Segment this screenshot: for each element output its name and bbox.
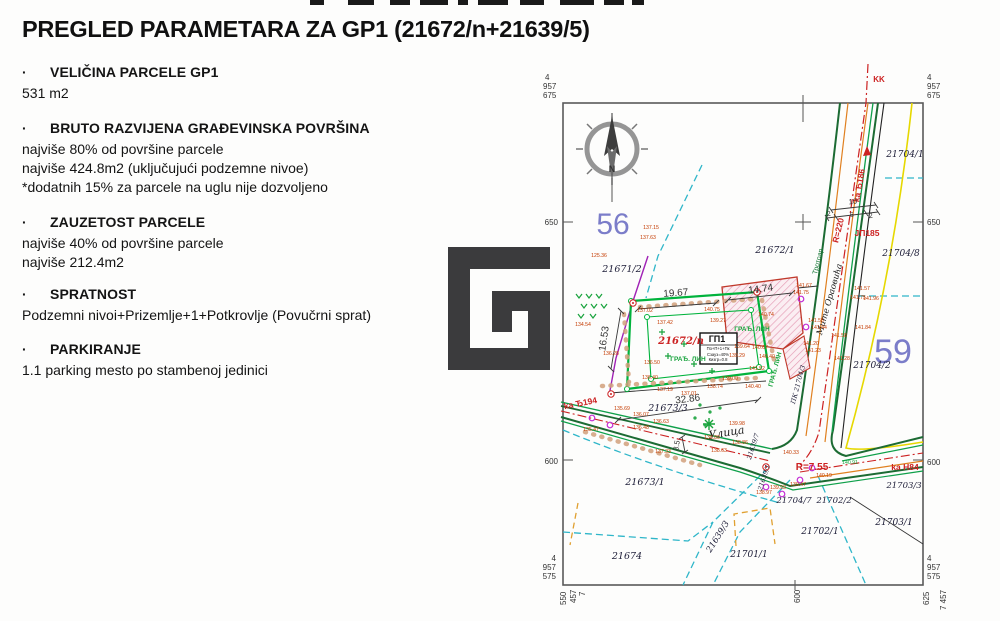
grid-coordinate-label: 457 — [569, 589, 578, 603]
spot-elevation: 136.28 — [603, 351, 619, 357]
grid-coordinate-label: 7 457 — [939, 589, 948, 610]
spot-elevation: 136.40 — [642, 375, 658, 381]
parcel-label: 21673/1 — [624, 477, 664, 488]
grid-coordinate-label: 625 — [922, 591, 931, 605]
spot-elevation: 134.54 — [575, 322, 591, 328]
radius-label: R=220 — [830, 217, 846, 244]
spot-elevation: 141.75 — [793, 290, 809, 296]
building-line-label: ГРАЂ. ЛИН — [734, 326, 770, 333]
dimension-label: 19.67 — [663, 287, 689, 300]
dimension-label: 16.53 — [597, 325, 611, 352]
grid-coordinate-label: 4 — [927, 554, 932, 563]
spot-elevation: 140.74 — [758, 312, 774, 318]
gp1-box-title: ГП1 — [709, 334, 726, 344]
spot-elevation: 140.40 — [759, 354, 775, 360]
spot-elevation: 141.23 — [805, 348, 821, 354]
spot-elevation: 141.57 — [854, 286, 870, 292]
parcel-label: 21704/7 — [775, 496, 812, 506]
bullet: · — [22, 213, 50, 231]
section-bruto: ·BRUTO RAZVIJENA GRAĐEVINSKA POVRŠINA na… — [22, 119, 527, 197]
spot-elevation: 140.75 — [704, 307, 720, 313]
spot-elevation: 137.15 — [643, 225, 659, 231]
parcel-label: 21702/2 — [815, 496, 851, 506]
grid-coordinate-label: 4 — [545, 73, 550, 82]
parcel-label: 21703/3 — [885, 481, 921, 491]
spot-elevation: 135.47 — [583, 427, 599, 433]
grid-coordinate-label: 575 — [927, 572, 941, 581]
grid-coordinate-label: 675 — [927, 91, 941, 100]
point-label: ЈП185 — [854, 228, 879, 238]
grid-coordinate-label: 7 — [578, 591, 587, 596]
section-heading: VELIČINA PARCELE GP1 — [50, 63, 218, 81]
section-heading: SPRATNOST — [50, 285, 136, 303]
spot-elevation: 136.48 — [633, 425, 649, 431]
parcel-label: 21672/1 — [754, 245, 794, 256]
parcel-label: 21703/1 — [874, 518, 912, 528]
spot-elevation: 138.74 — [707, 384, 723, 390]
dimension-label: 10 — [848, 197, 857, 207]
block-number: 56 — [596, 208, 629, 241]
page-title: PREGLED PARAMETARA ZA GP1 (21672/n+21639… — [22, 16, 590, 43]
parcel-label: 21639/3 — [704, 519, 732, 555]
grid-coordinate-label: 550 — [559, 591, 568, 605]
spot-elevation: 139.00 — [722, 376, 738, 382]
spot-elevation: 139.93 — [770, 485, 786, 491]
grid-coordinate-label: 4 — [927, 73, 932, 82]
spot-elevation: 137.63 — [640, 235, 656, 241]
gp1-box-line: По+П+1+Пк — [707, 346, 730, 351]
spot-elevation: 141.20 — [803, 341, 819, 347]
dimension-label: 2 — [869, 213, 874, 220]
cadastral-map: 4957675495767565060065060049575754957575… — [540, 60, 1000, 621]
spot-elevation: 125.36 — [591, 253, 607, 259]
section-line: najviše 424.8m2 (uključujući podzemne ni… — [22, 159, 527, 177]
grid-coordinate-label: 600 — [545, 457, 559, 466]
parcel-label: 21701/1 — [729, 550, 767, 560]
section-line: *dodatnih 15% za parcele na uglu nije do… — [22, 178, 527, 196]
spot-elevation: 140.40 — [745, 384, 761, 390]
spot-elevation: 135.69 — [614, 406, 630, 412]
spot-elevation: 138.63 — [711, 448, 727, 454]
radius-label: R=7.55 — [796, 462, 829, 473]
spot-elevation: 141.96 — [863, 296, 879, 302]
parcel-label: 21704/1 — [885, 150, 923, 160]
route-label: KK — [873, 75, 885, 84]
spot-elevation: 137.01 — [681, 391, 697, 397]
parcel-label: 21674 — [611, 551, 642, 562]
grid-coordinate-label: 600 — [927, 458, 941, 467]
bullet: · — [22, 285, 50, 303]
spot-elevation: 137.19 — [657, 387, 673, 393]
spot-elevation: 138.86 — [732, 440, 748, 446]
grid-coordinate-label: 650 — [927, 218, 941, 227]
section-line: najviše 80% od površine parcele — [22, 140, 527, 158]
gp1-box-line: Кизгр=0.8 — [709, 357, 728, 362]
spot-elevation: 139.27 — [710, 318, 726, 324]
dimension-label: 3.5 — [671, 440, 682, 452]
document-page: { "page": { "bullet": "·", "title": "PRE… — [0, 0, 1000, 621]
section-line: 531 m2 — [22, 84, 527, 102]
spot-elevation: 139.64 — [734, 344, 750, 350]
spot-elevation: 141.52 — [749, 366, 765, 372]
sidewalk-label: Тротоар — [812, 248, 825, 275]
bullet: · — [22, 119, 50, 137]
spot-elevation: 137.42 — [657, 320, 673, 326]
spot-elevation: 138.97 — [756, 490, 772, 496]
spot-elevation: 141.44 — [811, 325, 827, 331]
spot-elevation: 141.28 — [834, 356, 850, 362]
g-logo — [448, 247, 550, 370]
spot-elevation: 140.33 — [783, 450, 799, 456]
spot-elevation: 141.55 — [808, 318, 824, 324]
section-heading: BRUTO RAZVIJENA GRAĐEVINSKA POVRŠINA — [50, 119, 370, 137]
grid-coordinate-label: 957 — [543, 563, 557, 572]
spot-elevation: 139.29 — [729, 353, 745, 359]
compass-n-label: N — [609, 164, 616, 174]
grid-coordinate-label: 4 — [552, 554, 557, 563]
grid-coordinate-label: 957 — [927, 563, 941, 572]
spot-elevation: 137.33 — [655, 449, 671, 455]
grid-coordinate-label: 957 — [927, 82, 941, 91]
spot-elevation: 136.07 — [633, 412, 649, 418]
spot-elevation: 141.84 — [855, 325, 871, 331]
gp1-parcel-label: 21672/n — [657, 336, 704, 347]
spot-elevation: 139.98 — [729, 421, 745, 427]
section-velicina: ·VELIČINA PARCELE GP1 531 m2 — [22, 63, 527, 103]
section-heading: PARKIRANJE — [50, 340, 141, 358]
spot-elevation: 138.89 — [704, 435, 720, 441]
parcel-label: 21702/1 — [800, 527, 838, 537]
spot-elevation: 141.58 — [831, 333, 847, 339]
spot-elevation: 137.02 — [637, 308, 653, 314]
grid-coordinate-label: 650 — [545, 218, 559, 227]
spot-elevation: 139.47 — [790, 482, 806, 488]
north-compass-icon — [576, 113, 648, 202]
section-heading: ZAUZETOST PARCELE — [50, 213, 205, 231]
spot-elevation: 136.63 — [653, 419, 669, 425]
route-direction-label: ka Н84 — [891, 462, 919, 472]
grid-coordinate-label: 675 — [543, 91, 557, 100]
grid-coordinate-label: 575 — [543, 572, 557, 581]
parcel-label: 21704/8 — [881, 249, 920, 259]
spot-elevation: 140.67 — [752, 345, 768, 351]
bullet: · — [22, 63, 50, 81]
grid-coordinate-label: 600 — [793, 589, 802, 603]
spot-elevation: 140.91 — [842, 460, 858, 466]
dimension-label: 6 — [850, 212, 855, 219]
orange-dashed-lines — [570, 503, 775, 546]
parcel-label: 21671/2 — [601, 264, 641, 275]
parcel-label: 21704/2 — [852, 361, 891, 371]
grid-coordinate-label: 957 — [543, 82, 557, 91]
spot-elevation: 136.50 — [644, 360, 660, 366]
building-line-label: ГРАЂ. ЛИН — [670, 356, 706, 363]
dimension-label: 2 — [827, 211, 832, 218]
bullet: · — [22, 340, 50, 358]
spot-elevation: 141.67 — [796, 283, 812, 289]
spot-elevation: 140.19 — [816, 473, 832, 479]
